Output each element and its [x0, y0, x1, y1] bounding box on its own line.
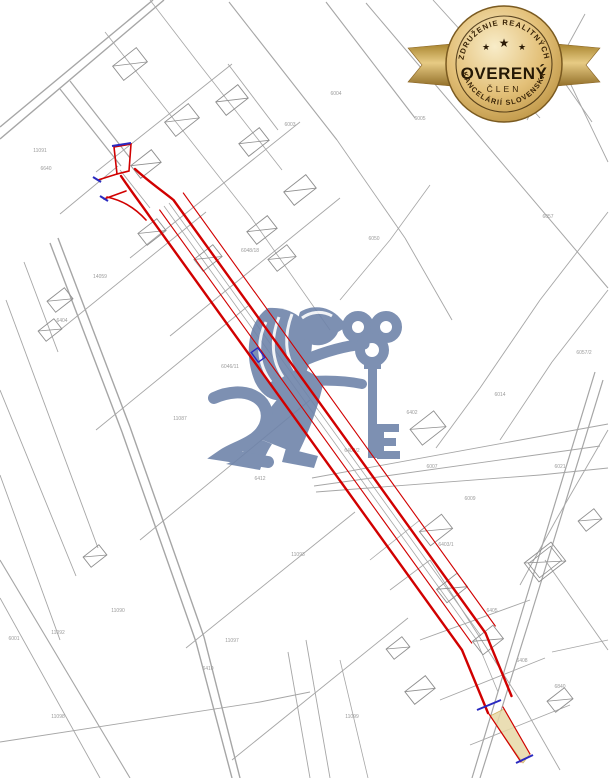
boundary-line: [24, 262, 58, 352]
boundary-line: [530, 380, 603, 618]
boundary-line: [405, 238, 452, 320]
svg-text:★: ★: [499, 36, 510, 50]
house-symbol: [547, 688, 573, 713]
parcel-number: 11092: [51, 630, 65, 636]
parcel-number: 6408: [516, 658, 527, 664]
house-symbol: [578, 509, 602, 532]
boundary-line: [150, 0, 196, 60]
parcel-number: 6004: [330, 91, 341, 97]
parcel-number: 11097: [225, 638, 239, 644]
house-symbol: [410, 411, 446, 445]
house-symbol: [524, 542, 566, 582]
key-collar: [364, 362, 381, 369]
parcel-red-line: [121, 176, 488, 713]
highlighted-parcel-outline: [98, 144, 530, 763]
parcel-number: 6405: [486, 608, 497, 614]
boundary-line: [0, 0, 164, 139]
boundary-line: [50, 243, 122, 432]
house-symbol: [113, 48, 148, 81]
house-symbol: [386, 637, 410, 660]
boundary-line: [169, 203, 481, 636]
cadastral-map-canvas: 6640110916057600460036001110921109014059…: [0, 0, 609, 778]
boundary-line: [337, 140, 405, 238]
boundary-line: [58, 238, 130, 427]
parcel-number: 11091: [33, 148, 47, 154]
parcel-red-line: [183, 193, 495, 626]
parcel-red-line: [107, 197, 146, 220]
boundary-line: [288, 652, 310, 778]
parcel-number: 6003: [284, 122, 295, 128]
parcel-number: 6057: [542, 214, 553, 220]
boundary-line: [552, 640, 608, 652]
survey-mark-line: [477, 700, 501, 710]
parcel-number: 6404: [56, 318, 67, 324]
parcel-number: 6021: [554, 464, 565, 470]
boundary-line: [232, 618, 408, 760]
house-symbol: [284, 175, 317, 206]
boundary-line: [326, 2, 415, 118]
lion-with-key-watermark-icon: [214, 307, 400, 470]
parcel-number: 6007: [426, 464, 437, 470]
parcel-number: 6403/1: [438, 542, 454, 548]
parcel-number: 11098: [51, 714, 65, 720]
svg-text:★: ★: [482, 43, 490, 53]
boundary-line: [260, 692, 310, 702]
parcel-number: 6057/2: [576, 350, 592, 356]
boundary-line: [480, 300, 540, 388]
parcel-number: 6410: [202, 666, 213, 672]
house-roof-line: [410, 411, 446, 445]
parcel-number: 11087: [173, 416, 187, 422]
boundary-line: [316, 475, 540, 492]
badge-title: OVERENÝ: [461, 64, 548, 83]
house-symbol: [405, 676, 435, 705]
house-symbol: [247, 216, 277, 245]
boundary-line: [0, 598, 100, 778]
boundary-line: [196, 60, 282, 170]
parcel-number: 11099: [345, 714, 359, 720]
boundary-line: [340, 240, 390, 300]
key-stem: [368, 360, 377, 458]
boundary-line: [60, 166, 118, 214]
house-symbol: [268, 245, 296, 272]
boundary-line: [130, 427, 204, 637]
boundary-line: [105, 32, 250, 216]
verified-member-badge: ZDRUŽENIE REALITNÝCH ★ ★ ★ OVERENÝ ČLEN …: [408, 6, 600, 122]
parcel-number: 6640: [40, 166, 51, 172]
parcel-number: 6014: [494, 392, 505, 398]
house-symbol: [216, 85, 249, 116]
boundary-line: [500, 362, 552, 440]
house-symbol: [419, 514, 452, 545]
parcel-number: 11090: [111, 608, 125, 614]
boundary-line: [60, 212, 206, 330]
boundary-line: [164, 206, 476, 639]
boundary-line: [390, 185, 430, 240]
parcel-number: 6840: [554, 684, 565, 690]
cadastral-map-page: 6640110916057600460036001110921109014059…: [0, 0, 609, 778]
parcel-number: 6046/11: [221, 364, 239, 370]
boundary-line: [0, 560, 130, 778]
parcel-number: 6009: [464, 496, 475, 502]
key-bow: [347, 316, 397, 362]
boundary-line: [229, 2, 337, 140]
key-bits: [377, 424, 400, 459]
parcel-number: 6001: [8, 636, 19, 642]
boundary-line: [0, 390, 76, 576]
house-symbol: [131, 150, 161, 179]
parcel-red-line: [135, 169, 512, 696]
parcel-number: 6050: [368, 236, 379, 242]
boundary-line: [436, 388, 480, 448]
parcel-red-line: [160, 210, 472, 643]
boundary-line: [60, 89, 121, 166]
boundary-line: [196, 642, 232, 778]
boundary-line: [545, 560, 608, 650]
parcel-number: 6048/18: [241, 248, 259, 254]
parcel-number: 6402: [406, 410, 417, 416]
parcel-number: 6005: [414, 116, 425, 122]
svg-text:★: ★: [518, 43, 526, 53]
parcel-number: 11093: [291, 552, 305, 558]
boundary-line: [540, 212, 608, 300]
badge-subtitle: ČLEN: [487, 84, 522, 94]
boundary-line: [306, 640, 330, 778]
parcel-number: 14059: [93, 274, 107, 280]
house-symbol: [83, 545, 107, 568]
house-symbol: [165, 104, 200, 137]
boundary-line: [228, 64, 278, 130]
boundary-line: [122, 432, 196, 642]
parcel-number: 6412: [254, 476, 265, 482]
parcel-end-highlight: [490, 709, 530, 763]
house-symbol: [239, 128, 269, 157]
boundary-line: [390, 560, 430, 590]
boundary-line: [522, 372, 595, 612]
boundary-line: [186, 512, 355, 648]
boundary-line: [0, 475, 60, 640]
